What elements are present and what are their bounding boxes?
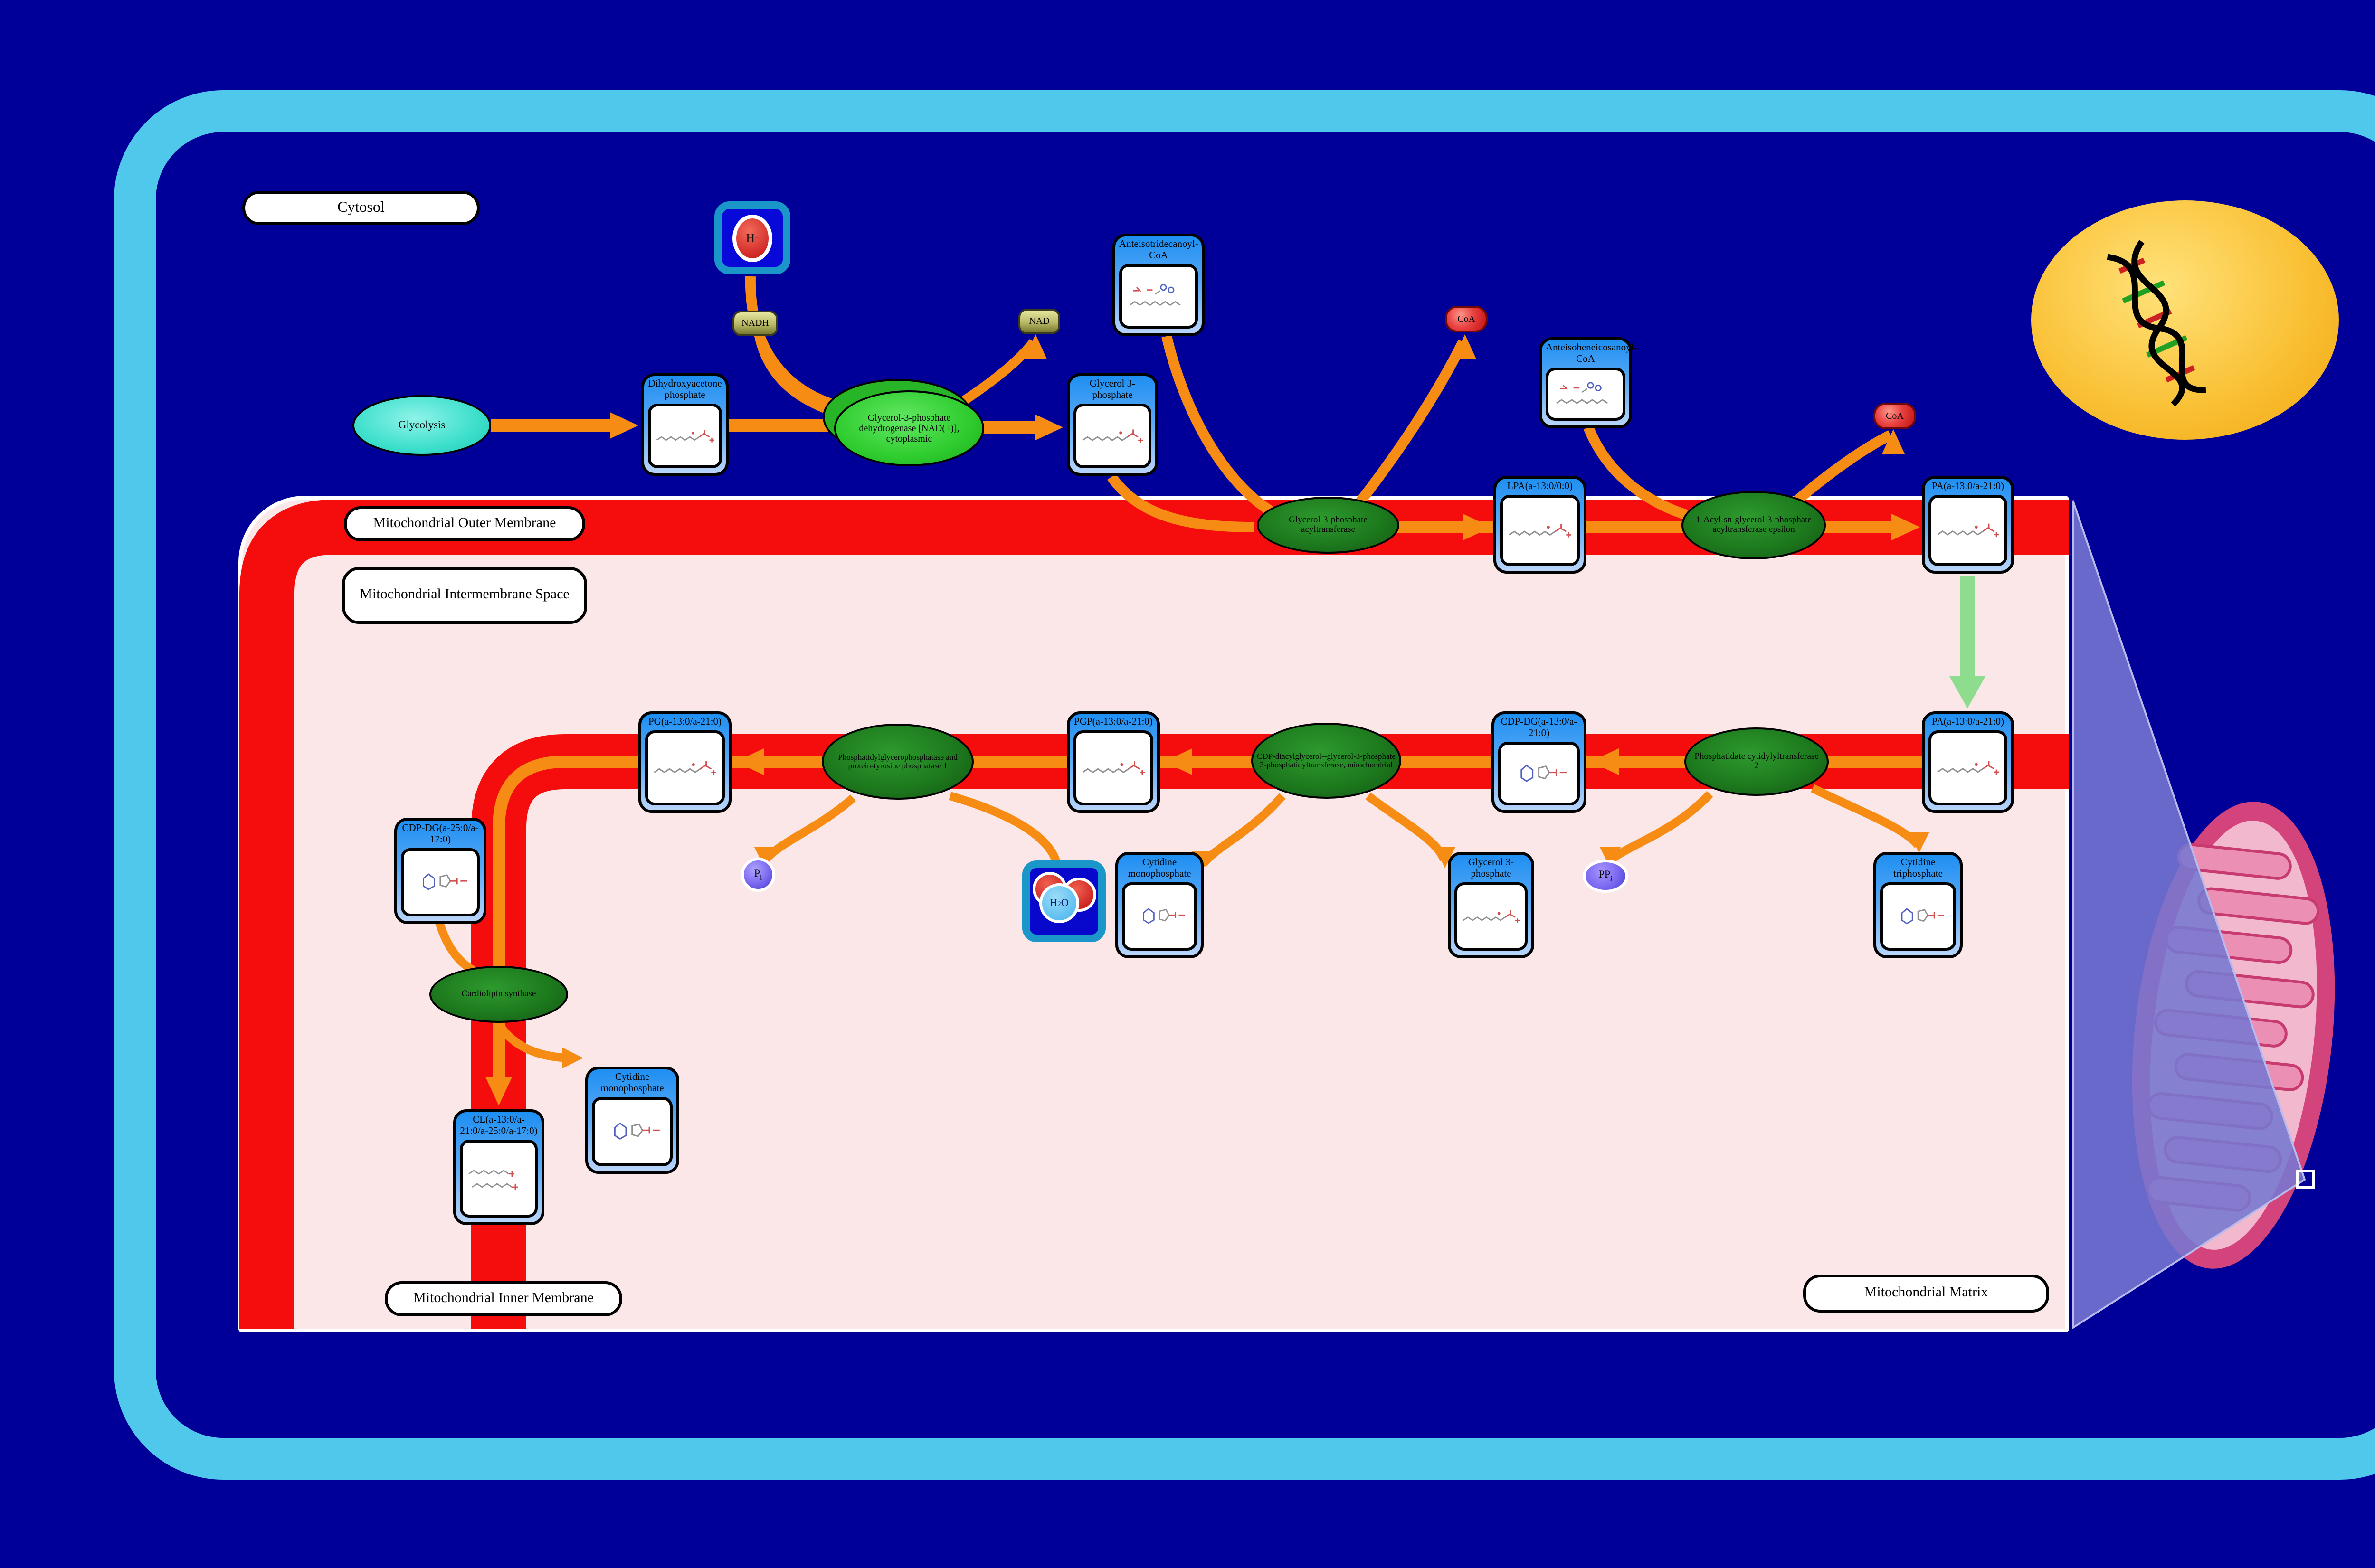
metabolite-label: Cytidine monophosphate xyxy=(592,1072,673,1095)
structure-thumbnail xyxy=(1880,882,1956,951)
process-node-glycolysis[interactable]: Glycolysis xyxy=(352,395,491,456)
metabolite-node-pg[interactable]: PG(a-13:0/a-21:0) xyxy=(638,711,731,813)
structure-thumbnail xyxy=(1122,882,1197,951)
transport-arrow-green xyxy=(1949,576,1985,708)
region-label-matrix: Mitochondrial Matrix xyxy=(1803,1275,2049,1313)
structure-thumbnail xyxy=(645,730,725,806)
metabolite-label: PA(a-13:0/a-21:0) xyxy=(1928,482,2007,493)
metabolite-label: Dihydroxyacetone phosphate xyxy=(648,379,722,401)
metabolite-node-cl[interactable]: CL(a-13:0/a-21:0/a-25:0/a-17:0) xyxy=(453,1109,544,1225)
cofactor-coa-1[interactable]: CoA xyxy=(1445,306,1488,332)
zoom-projection-wedge xyxy=(2073,501,2305,1328)
structure-thumbnail xyxy=(1498,741,1580,805)
metabolite-node-anteisoheneicosanoyl-coa[interactable]: Anteisoheneicosanoyl-CoA xyxy=(1539,337,1632,428)
h-plus-icon[interactable]: H+ xyxy=(714,201,790,274)
enzyme-node-gpat[interactable]: Glycerol-3-phosphate acyltransferase xyxy=(1257,497,1399,554)
enzyme-label: CDP-diacylglycerol--glycerol-3-phosphate… xyxy=(1257,752,1396,769)
metabolite-label: LPA(a-13:0/0:0) xyxy=(1500,482,1580,493)
metabolite-node-cdp-dg-25-17[interactable]: CDP-DG(a-25:0/a-17:0) xyxy=(394,818,486,924)
metabolite-label: Glycerol 3-phosphate xyxy=(1073,379,1151,401)
metabolite-node-glycerol-3-phosphate-matrix[interactable]: Glycerol 3-phosphate xyxy=(1448,852,1534,958)
metabolite-node-dhap[interactable]: Dihydroxyacetone phosphate xyxy=(641,373,729,476)
region-label-inner-membrane: Mitochondrial Inner Membrane xyxy=(385,1281,622,1316)
metabolite-label: PG(a-13:0/a-21:0) xyxy=(645,717,725,728)
metabolite-label: CDP-DG(a-25:0/a-17:0) xyxy=(401,823,480,846)
metabolite-label: Cytidine monophosphate xyxy=(1122,858,1197,880)
enzyme-node-gpd-cytoplasmic[interactable]: Glycerol-3-phosphate dehydrogenase [NAD(… xyxy=(834,390,984,466)
pathway-diagram-canvas: Cytosol Mitochondrial Outer Membrane Mit… xyxy=(0,0,2375,1568)
region-label-text: Cytosol xyxy=(337,199,385,217)
cofactor-nadh[interactable]: NADH xyxy=(732,311,778,336)
structure-thumbnail xyxy=(460,1139,538,1218)
pi-label: Pi xyxy=(754,868,762,881)
metabolite-node-pa-inner[interactable]: PA(a-13:0/a-21:0) xyxy=(1922,711,2014,813)
enzyme-node-pgs-mitochondrial[interactable]: CDP-diacylglycerol--glycerol-3-phosphate… xyxy=(1251,723,1401,799)
nadh-label: NADH xyxy=(741,318,769,329)
nad-label: NAD xyxy=(1029,316,1049,327)
enzyme-node-agpat-epsilon[interactable]: 1-Acyl-sn-glycerol-3-phosphate acyltrans… xyxy=(1681,491,1826,559)
metabolite-node-pa-outer[interactable]: PA(a-13:0/a-21:0) xyxy=(1922,476,2014,574)
structure-thumbnail xyxy=(1928,495,2007,567)
ppi-label: PPi xyxy=(1599,869,1613,883)
structure-thumbnail xyxy=(1928,730,2007,806)
metabolite-node-glycerol-3-phosphate-cytosol[interactable]: Glycerol 3-phosphate xyxy=(1067,373,1158,476)
region-label-text: Mitochondrial Inner Membrane xyxy=(413,1291,594,1307)
metabolite-node-anteisotridecanoyl-coa[interactable]: Anteisotridecanoyl-CoA xyxy=(1112,234,1205,336)
metabolite-label: Anteisotridecanoyl-CoA xyxy=(1119,239,1198,262)
structure-thumbnail xyxy=(1073,730,1153,806)
region-label-text: Mitochondrial Matrix xyxy=(1864,1285,1988,1302)
metabolite-node-pgp[interactable]: PGP(a-13:0/a-21:0) xyxy=(1067,711,1160,813)
structure-thumbnail xyxy=(1073,403,1151,468)
enzyme-label: Cardiolipin synthase xyxy=(462,990,536,1000)
region-label-cytosol: Cytosol xyxy=(242,191,480,225)
h2o-label: H2O xyxy=(1039,883,1079,923)
enzyme-node-cardiolipin-synthase[interactable]: Cardiolipin synthase xyxy=(429,966,568,1023)
structure-thumbnail xyxy=(401,848,480,916)
cofactor-coa-2[interactable]: CoA xyxy=(1873,403,1916,429)
region-label-text: Mitochondrial Intermembrane Space xyxy=(360,587,570,604)
metabolite-node-cdp-dg-13-21[interactable]: CDP-DG(a-13:0/a-21:0) xyxy=(1491,711,1586,813)
region-label-intermembrane-space: Mitochondrial Intermembrane Space xyxy=(342,567,587,624)
enzyme-label: Glycerol-3-phosphate acyltransferase xyxy=(1264,515,1392,535)
metabolite-label: CDP-DG(a-13:0/a-21:0) xyxy=(1498,717,1580,739)
enzyme-node-pcyt2[interactable]: Phosphatidate cytidylyltransferase 2 xyxy=(1684,727,1829,796)
pyrophosphate-ppi[interactable]: PPi xyxy=(1583,860,1628,893)
enzyme-label: 1-Acyl-sn-glycerol-3-phosphate acyltrans… xyxy=(1689,515,1818,535)
structure-thumbnail xyxy=(1546,367,1625,421)
enzyme-label: Phosphatidate cytidylyltransferase 2 xyxy=(1692,752,1821,772)
structure-thumbnail xyxy=(1119,264,1198,329)
metabolite-node-cmp-middle[interactable]: Cytidine monophosphate xyxy=(1115,852,1204,958)
metabolite-label: Cytidine triphosphate xyxy=(1880,858,1956,880)
inner-membrane-band xyxy=(499,762,2069,1329)
h-plus-label: H+ xyxy=(732,214,772,262)
metabolite-node-lpa[interactable]: LPA(a-13:0/0:0) xyxy=(1493,476,1586,574)
metabolite-node-ctp[interactable]: Cytidine triphosphate xyxy=(1873,852,1963,958)
metabolite-label: PA(a-13:0/a-21:0) xyxy=(1928,717,2007,728)
metabolite-label: Anteisoheneicosanoyl-CoA xyxy=(1546,343,1625,365)
structure-thumbnail xyxy=(1454,882,1528,951)
enzyme-label: Phosphatidylglycerophosphatase and prote… xyxy=(827,753,968,770)
region-label-text: Mitochondrial Outer Membrane xyxy=(373,516,556,532)
structure-thumbnail xyxy=(592,1096,673,1166)
structure-thumbnail xyxy=(1500,495,1580,567)
process-label: Glycolysis xyxy=(399,420,445,431)
enzyme-node-ptpmt1[interactable]: Phosphatidylglycerophosphatase and prote… xyxy=(822,724,974,800)
structure-thumbnail xyxy=(648,403,722,468)
region-label-outer-membrane: Mitochondrial Outer Membrane xyxy=(344,506,585,541)
water-icon[interactable]: H2O xyxy=(1022,860,1106,942)
coa-label: CoA xyxy=(1457,314,1475,324)
cofactor-nad[interactable]: NAD xyxy=(1018,309,1060,334)
phosphate-pi[interactable]: Pi xyxy=(741,858,775,892)
metabolite-node-cmp-left[interactable]: Cytidine monophosphate xyxy=(585,1067,679,1174)
coa-label: CoA xyxy=(1886,411,1904,421)
metabolite-label: Glycerol 3-phosphate xyxy=(1454,858,1528,880)
metabolite-label: PGP(a-13:0/a-21:0) xyxy=(1073,717,1153,728)
metabolite-label: CL(a-13:0/a-21:0/a-25:0/a-17:0) xyxy=(460,1115,538,1137)
enzyme-label: Glycerol-3-phosphate dehydrogenase [NAD(… xyxy=(842,413,977,444)
